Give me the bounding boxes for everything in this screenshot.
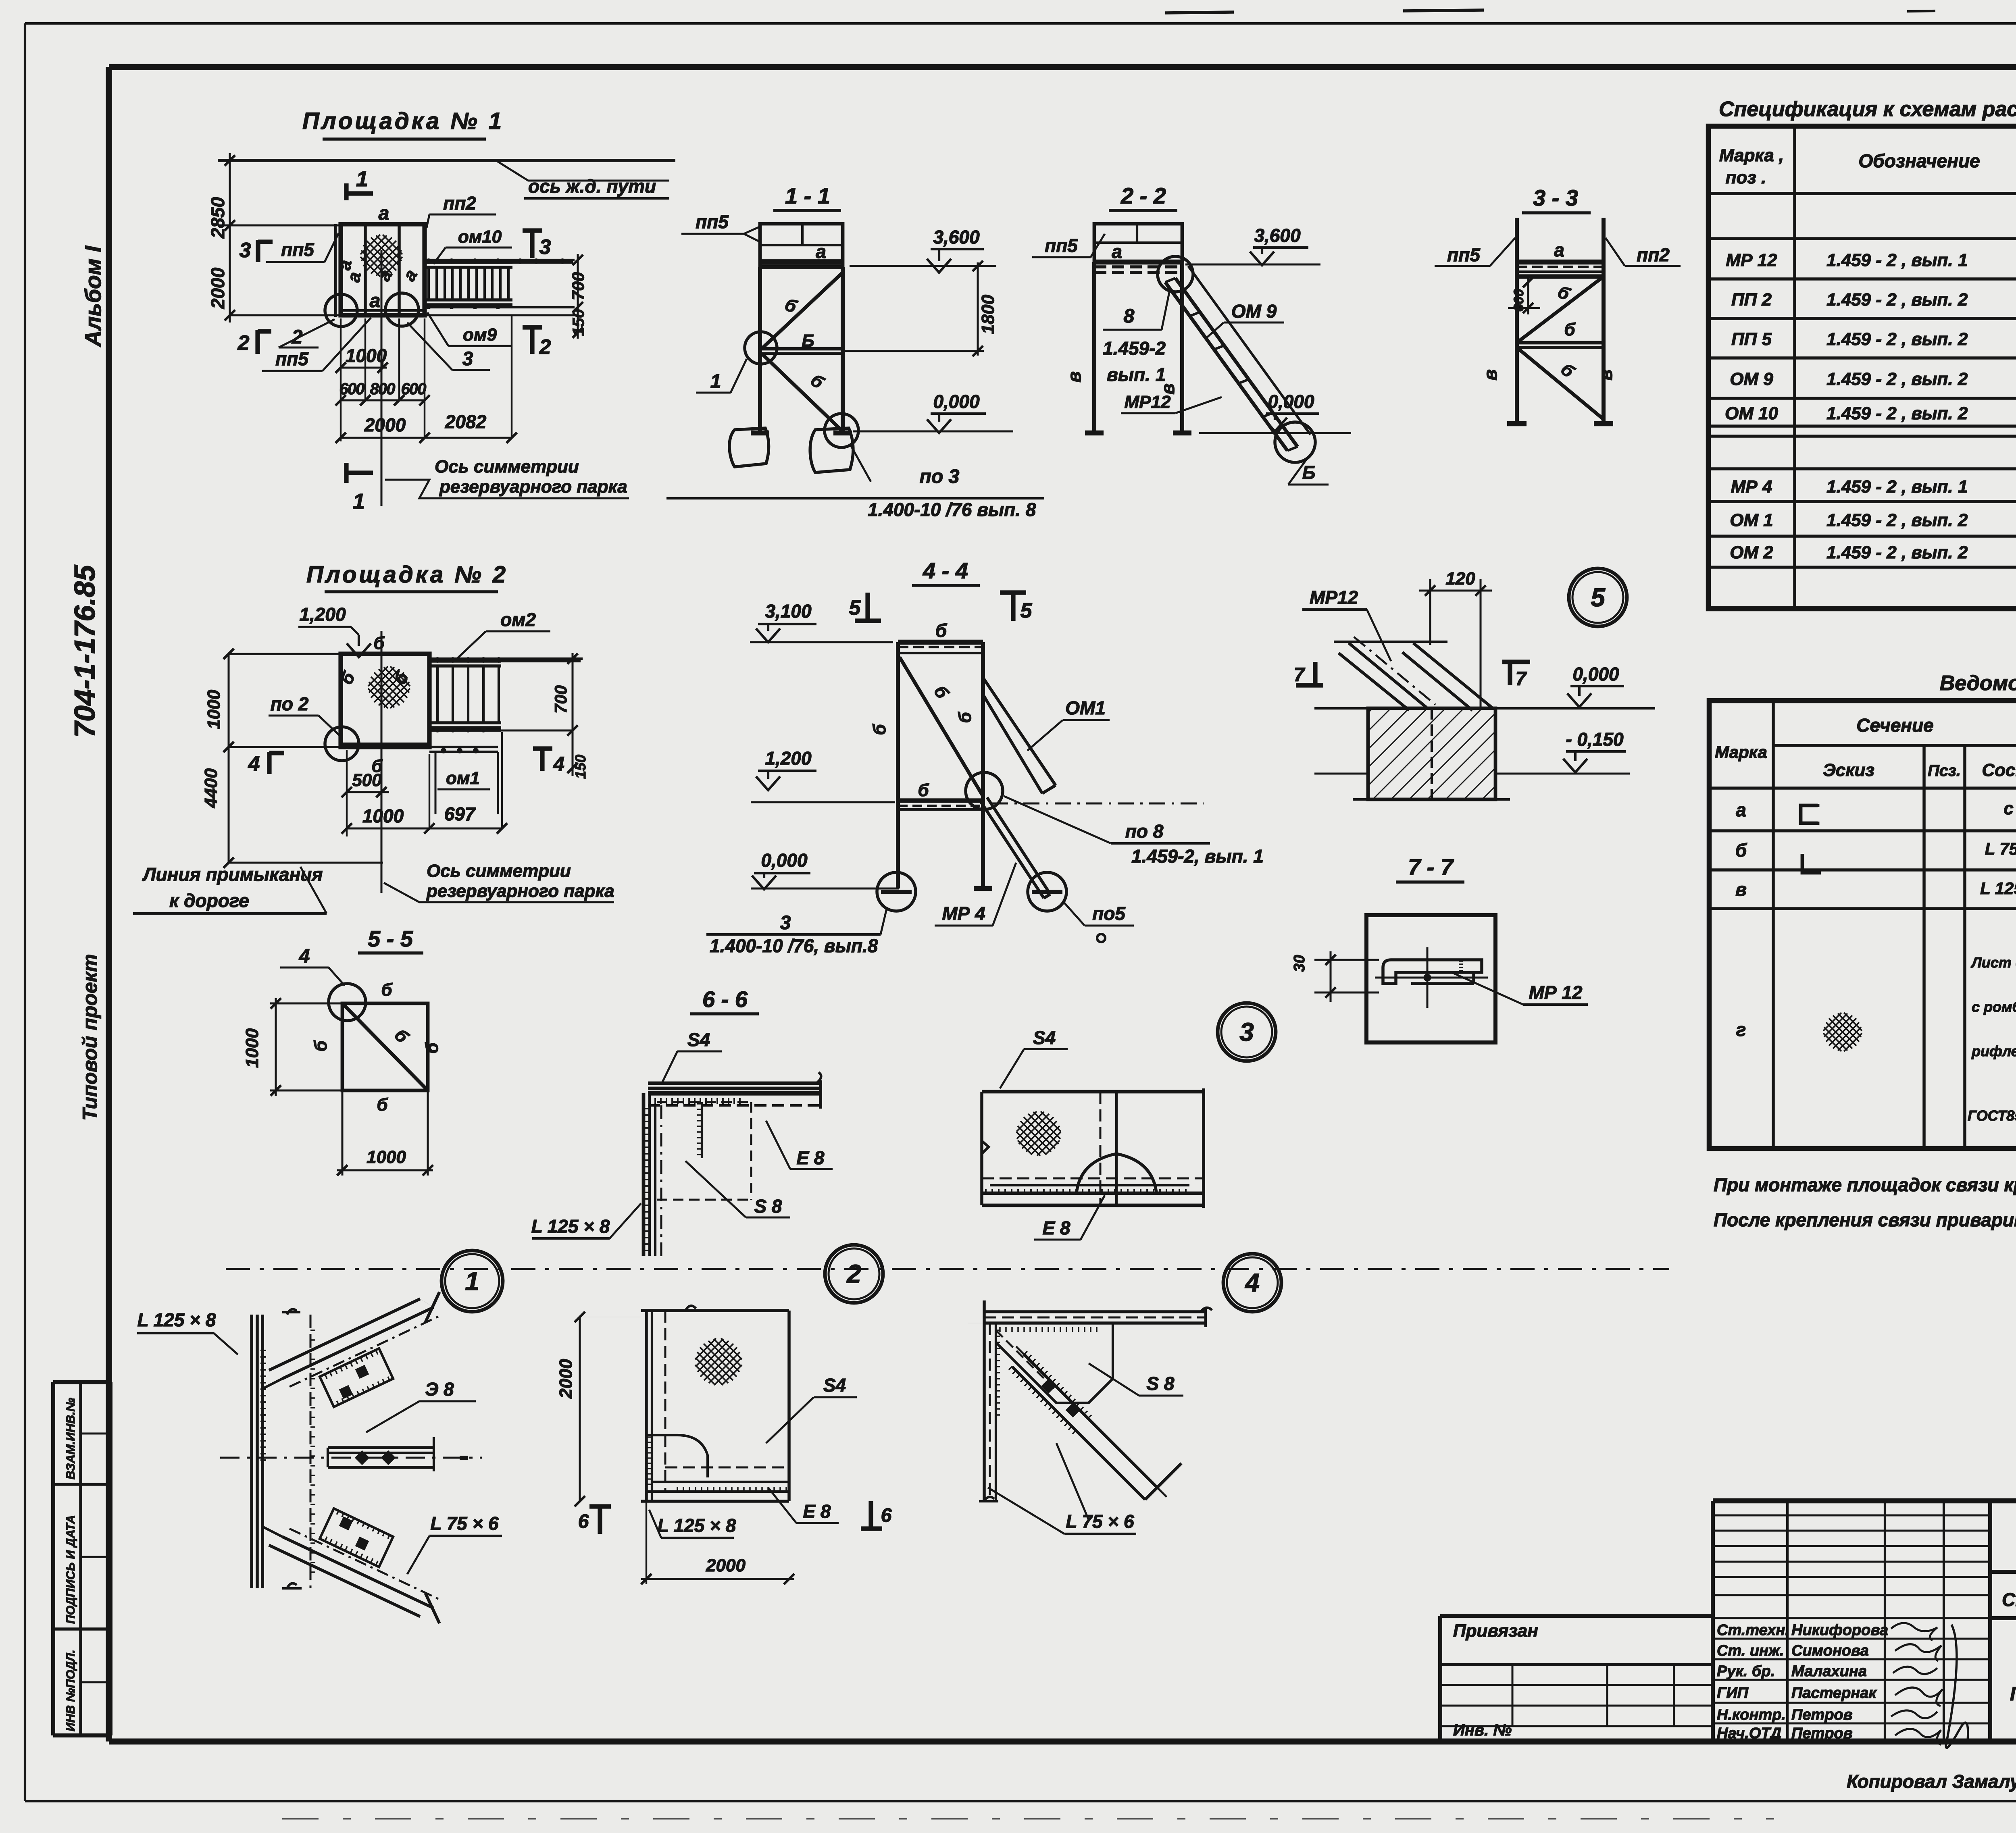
svg-text:L 75 × 6: L 75 × 6 (1985, 839, 2016, 858)
svg-text:697: 697 (444, 803, 476, 824)
svg-text:в: в (1595, 369, 1616, 381)
svg-text:0,000: 0,000 (1572, 664, 1619, 685)
svg-text:5: 5 (1020, 599, 1033, 622)
svg-text:пп5: пп5 (281, 239, 314, 260)
svg-text:пп5: пп5 (1045, 235, 1078, 256)
svg-text:ВЗАМ.ИНВ.№: ВЗАМ.ИНВ.№ (64, 1398, 77, 1479)
svg-text:700: 700 (551, 685, 570, 714)
svg-text:1000: 1000 (204, 690, 224, 729)
svg-text:Петров: Петров (1791, 1706, 1853, 1723)
svg-text:ом1: ом1 (446, 768, 480, 788)
svg-text:600: 600 (339, 380, 364, 398)
svg-text:МР12: МР12 (1310, 587, 1358, 608)
svg-text:Э 8: Э 8 (425, 1379, 454, 1400)
svg-text:2000: 2000 (364, 414, 406, 435)
svg-text:2 - 2: 2 - 2 (1120, 183, 1166, 208)
svg-text:к дороге: к дороге (169, 890, 249, 911)
svg-text:0,000: 0,000 (1268, 391, 1314, 412)
svg-text:ГОСТ8568-77*: ГОСТ8568-77* (1968, 1107, 2016, 1124)
svg-text:Рук. бр.: Рук. бр. (1717, 1663, 1775, 1680)
svg-text:МР 12: МР 12 (1726, 250, 1777, 270)
svg-text:После крепления связи пр: После крепления связи приварить. (1714, 1209, 2016, 1230)
svg-text:в: в (1480, 369, 1501, 381)
svg-text:L 125 × 8: L 125 × 8 (531, 1216, 610, 1237)
svg-text:пп5: пп5 (275, 348, 309, 369)
svg-text:б: б (422, 1042, 442, 1054)
svg-text:5: 5 (849, 596, 861, 620)
svg-text:Альбом I: Альбом I (80, 246, 106, 347)
svg-text:1.459 - 2 , вып. 1: 1.459 - 2 , вып. 1 (1826, 477, 1968, 497)
svg-text:1,200: 1,200 (299, 604, 346, 625)
svg-text:ом9: ом9 (463, 325, 497, 345)
svg-text:7: 7 (1516, 668, 1527, 690)
svg-text:0,000: 0,000 (761, 850, 808, 871)
svg-text:S4: S4 (687, 1029, 710, 1050)
svg-text:150: 150 (570, 309, 587, 336)
svg-text:Эскиз: Эскиз (1823, 760, 1874, 780)
svg-text:ом10: ом10 (458, 227, 502, 247)
svg-text:5 - 5: 5 - 5 (368, 926, 413, 951)
svg-text:1000: 1000 (346, 345, 387, 366)
svg-text:ом2: ом2 (500, 609, 536, 630)
svg-text:2000: 2000 (706, 1556, 746, 1575)
svg-text:3: 3 (539, 235, 551, 259)
svg-text:5: 5 (1591, 583, 1606, 612)
svg-text:рифлением: рифлением (1971, 1043, 2016, 1059)
svg-text:Площадка № 2: Площадка № 2 (306, 562, 508, 588)
svg-text:Ось симметрии: Ось симметрии (435, 457, 579, 476)
svg-text:по5: по5 (1092, 903, 1126, 924)
svg-text:Марка ,: Марка , (1719, 146, 1784, 165)
svg-text:б: б (935, 620, 948, 641)
svg-text:3: 3 (240, 239, 251, 262)
svg-text:a: a (379, 203, 389, 224)
svg-text:Никифорова: Никифорова (1791, 1622, 1888, 1639)
svg-text:ОМ 9: ОМ 9 (1231, 301, 1277, 322)
svg-text:1.459-2: 1.459-2 (1103, 338, 1166, 359)
svg-text:ОМ 10: ОМ 10 (1725, 404, 1779, 423)
svg-text:a: a (816, 241, 826, 262)
svg-text:6: 6 (578, 1511, 589, 1532)
svg-text:- 0,150: - 0,150 (1566, 729, 1624, 750)
svg-text:Пастернак: Пастернак (1791, 1685, 1877, 1702)
svg-text:Обозначение: Обозначение (1858, 150, 1980, 171)
svg-text:Площадка № 1: Площадка № 1 (302, 108, 504, 134)
svg-text:4: 4 (248, 752, 260, 776)
svg-text:2082: 2082 (445, 411, 487, 432)
svg-text:1 - 1: 1 - 1 (785, 183, 830, 208)
svg-text:б: б (870, 724, 889, 735)
svg-text:ОМ1: ОМ1 (1065, 697, 1106, 718)
svg-text:6 - 6: 6 - 6 (702, 986, 748, 1012)
svg-text:Симонова: Симонова (1791, 1642, 1869, 1659)
svg-text:с 8: с 8 (2004, 799, 2016, 818)
svg-text:ПОДПИСЬ И ДАТА: ПОДПИСЬ И ДАТА (64, 1515, 77, 1624)
svg-text:700: 700 (569, 272, 587, 300)
svg-text:б: б (377, 1095, 388, 1115)
svg-text:Сечение: Сечение (1856, 715, 1934, 736)
svg-text:2: 2 (539, 335, 551, 359)
svg-text:1: 1 (465, 1267, 479, 1296)
svg-text:1,200: 1,200 (765, 748, 812, 769)
svg-text:1000: 1000 (362, 805, 404, 826)
svg-text:Площадки №1 и № 2: Площадки №1 и № 2 (2010, 1683, 2016, 1705)
svg-text:МР12: МР12 (1125, 392, 1171, 412)
svg-text:1.459-2, вып. 1: 1.459-2, вып. 1 (1131, 846, 1264, 867)
svg-text:L 75 × 6: L 75 × 6 (1066, 1511, 1134, 1532)
svg-text:по 2: по 2 (271, 693, 309, 714)
svg-text:4: 4 (1244, 1268, 1260, 1297)
svg-text:ПП 2: ПП 2 (1731, 290, 1772, 310)
svg-text:2: 2 (846, 1259, 861, 1288)
svg-text:пп5: пп5 (696, 211, 729, 232)
svg-text:ИНВ №ПОДЛ.: ИНВ №ПОДЛ. (64, 1650, 77, 1731)
svg-text:При монтаже площадок свя: При монтаже площадок связи крепить болта… (1714, 1174, 2016, 1195)
svg-text:пп2: пп2 (1637, 244, 1670, 265)
svg-text:Петров: Петров (1791, 1725, 1853, 1742)
svg-text:Линия примыкания: Линия примыкания (142, 864, 323, 885)
svg-text:1.459 - 2 , вып. 2: 1.459 - 2 , вып. 2 (1826, 290, 1968, 310)
svg-text:1000: 1000 (367, 1147, 406, 1167)
svg-text:3,600: 3,600 (1254, 225, 1301, 246)
svg-text:800: 800 (370, 380, 395, 398)
svg-text:Привязан: Привязан (1453, 1621, 1538, 1641)
svg-text:a: a (1736, 799, 1746, 820)
svg-text:б: б (918, 780, 929, 800)
svg-text:поз .: поз . (1726, 168, 1766, 187)
svg-text:S4: S4 (823, 1375, 846, 1396)
svg-text:Ст. инж.: Ст. инж. (1717, 1642, 1784, 1659)
svg-text:Типовой проект: Типовой проект (79, 954, 101, 1121)
svg-text:1.459 - 2 , вып. 2: 1.459 - 2 , вып. 2 (1826, 369, 1968, 389)
svg-text:3: 3 (1239, 1017, 1254, 1047)
svg-text:б: б (1564, 320, 1576, 339)
svg-text:резервуарного парка: резервуарного парка (439, 477, 627, 497)
svg-text:704-1-176.85: 704-1-176.85 (69, 565, 101, 738)
svg-text:в: в (1735, 879, 1747, 900)
svg-text:ОМ 9: ОМ 9 (1730, 369, 1773, 389)
svg-text:120: 120 (1445, 569, 1475, 589)
svg-text:3,100: 3,100 (765, 601, 812, 622)
svg-text:пп2: пп2 (443, 193, 476, 214)
svg-text:б: б (1735, 840, 1747, 861)
svg-text:Марка: Марка (1715, 743, 1767, 761)
svg-text:8: 8 (1124, 306, 1135, 327)
svg-text:1: 1 (356, 167, 368, 191)
svg-text:МР 12: МР 12 (1529, 982, 1583, 1003)
svg-text:Е 8: Е 8 (796, 1147, 824, 1168)
svg-text:МР 4: МР 4 (942, 903, 985, 924)
svg-text:Малахина: Малахина (1791, 1663, 1867, 1680)
svg-text:Инв. №: Инв. № (1453, 1721, 1512, 1739)
svg-text:ПП 5: ПП 5 (1731, 329, 1772, 349)
svg-text:Н.контр.: Н.контр. (1717, 1706, 1786, 1723)
svg-text:L 125 × 8: L 125 × 8 (137, 1309, 216, 1330)
svg-text:г: г (1736, 1019, 1746, 1040)
svg-text:1: 1 (710, 371, 721, 392)
svg-text:ось ж.д. пути: ось ж.д. пути (528, 176, 656, 197)
svg-text:a: a (370, 290, 381, 312)
svg-text:S 8: S 8 (754, 1196, 782, 1217)
svg-text:Е 8: Е 8 (1042, 1217, 1070, 1238)
svg-text:Б: Б (1302, 462, 1316, 483)
svg-text:7: 7 (1294, 664, 1306, 686)
svg-text:1.459 - 2 , вып. 1: 1.459 - 2 , вып. 1 (1826, 250, 1968, 270)
svg-text:вып. 1: вып. 1 (1107, 364, 1166, 385)
svg-text:1.400-10 /76, вып.8: 1.400-10 /76, вып.8 (710, 935, 878, 956)
svg-text:0,000: 0,000 (933, 391, 980, 412)
svg-text:4: 4 (553, 753, 564, 775)
svg-text:б: б (311, 1040, 331, 1052)
svg-text:Лист стальной: Лист стальной (1970, 954, 2016, 971)
svg-text:1.459 - 2 , вып. 2: 1.459 - 2 , вып. 2 (1826, 543, 1968, 562)
svg-text:по 3: по 3 (920, 466, 960, 487)
svg-text:1.459 - 2 , вып. 2: 1.459 - 2 , вып. 2 (1826, 404, 1968, 423)
svg-text:б: б (381, 980, 393, 1000)
svg-text:3: 3 (780, 912, 791, 934)
svg-text:б: б (373, 633, 385, 653)
svg-text:Копировал Замалуева: Копировал Замалуева (1847, 1771, 2016, 1792)
svg-text:3,600: 3,600 (933, 227, 980, 248)
svg-text:4400: 4400 (201, 768, 221, 808)
svg-text:3 - 3: 3 - 3 (1533, 185, 1578, 210)
svg-text:30: 30 (1291, 955, 1308, 972)
svg-text:2000: 2000 (556, 1359, 576, 1399)
svg-text:Ст.техн.: Ст.техн. (1717, 1622, 1789, 1639)
svg-text:1000: 1000 (242, 1028, 262, 1068)
svg-text:по 8: по 8 (1125, 821, 1164, 842)
svg-text:4: 4 (299, 946, 310, 967)
svg-text:600: 600 (401, 380, 426, 398)
svg-text:Спецификация к схемам распо: Спецификация к схемам расположения элеме… (1719, 98, 2016, 121)
svg-text:МР 4: МР 4 (1731, 477, 1772, 497)
svg-text:Состав: Состав (1982, 760, 2016, 780)
svg-text:Е 8: Е 8 (803, 1501, 831, 1522)
svg-text:4 - 4: 4 - 4 (923, 558, 968, 583)
svg-text:б: б (955, 712, 975, 723)
svg-text:a: a (1112, 241, 1122, 262)
svg-text:ГИП: ГИП (1717, 1685, 1749, 1702)
svg-text:пп5: пп5 (1447, 244, 1481, 265)
svg-text:1: 1 (353, 489, 365, 514)
svg-text:L 125 × 8: L 125 × 8 (658, 1515, 736, 1536)
svg-text:S 8: S 8 (1146, 1373, 1174, 1394)
svg-text:a: a (1554, 239, 1564, 260)
svg-text:500: 500 (352, 770, 382, 790)
svg-text:Псз.: Псз. (1928, 762, 1961, 780)
svg-text:Нач.ОТД: Нач.ОТД (1717, 1725, 1781, 1742)
svg-text:с ромбическим: с ромбическим (1972, 999, 2016, 1015)
svg-text:L 75 × 6: L 75 × 6 (430, 1513, 499, 1534)
svg-text:3: 3 (462, 348, 473, 370)
svg-text:1.459 - 2 , вып. 2: 1.459 - 2 , вып. 2 (1826, 510, 1968, 530)
svg-text:ОМ 1: ОМ 1 (1730, 510, 1773, 530)
svg-text:резервуарного парка: резервуарного парка (426, 881, 614, 901)
svg-text:Б: Б (802, 331, 814, 351)
svg-text:6: 6 (881, 1505, 892, 1526)
svg-text:Ось симметрии: Ось симметрии (427, 861, 571, 881)
svg-text:150: 150 (572, 755, 589, 779)
svg-text:S4: S4 (1033, 1027, 1056, 1048)
svg-text:2850: 2850 (207, 197, 228, 239)
svg-text:Склад светлых нефтепродуктов: Склад светлых нефтепродуктов емкостью 30… (2002, 1589, 2016, 1610)
svg-text:2000: 2000 (207, 267, 228, 309)
svg-text:ОМ 2: ОМ 2 (1730, 543, 1773, 562)
svg-text:7 - 7: 7 - 7 (1408, 854, 1454, 880)
svg-text:Ведомость элементов: Ведомость элементов (1940, 672, 2016, 695)
svg-text:1800: 1800 (978, 295, 998, 334)
svg-text:1.459 - 2 , вып. 2: 1.459 - 2 , вып. 2 (1826, 329, 1968, 349)
svg-text:1.400-10 /76 вып. 8: 1.400-10 /76 вып. 8 (868, 499, 1036, 520)
svg-text:2: 2 (237, 331, 250, 355)
svg-text:L 125 × 8: L 125 × 8 (1980, 879, 2016, 898)
svg-text:в: в (1064, 371, 1085, 383)
